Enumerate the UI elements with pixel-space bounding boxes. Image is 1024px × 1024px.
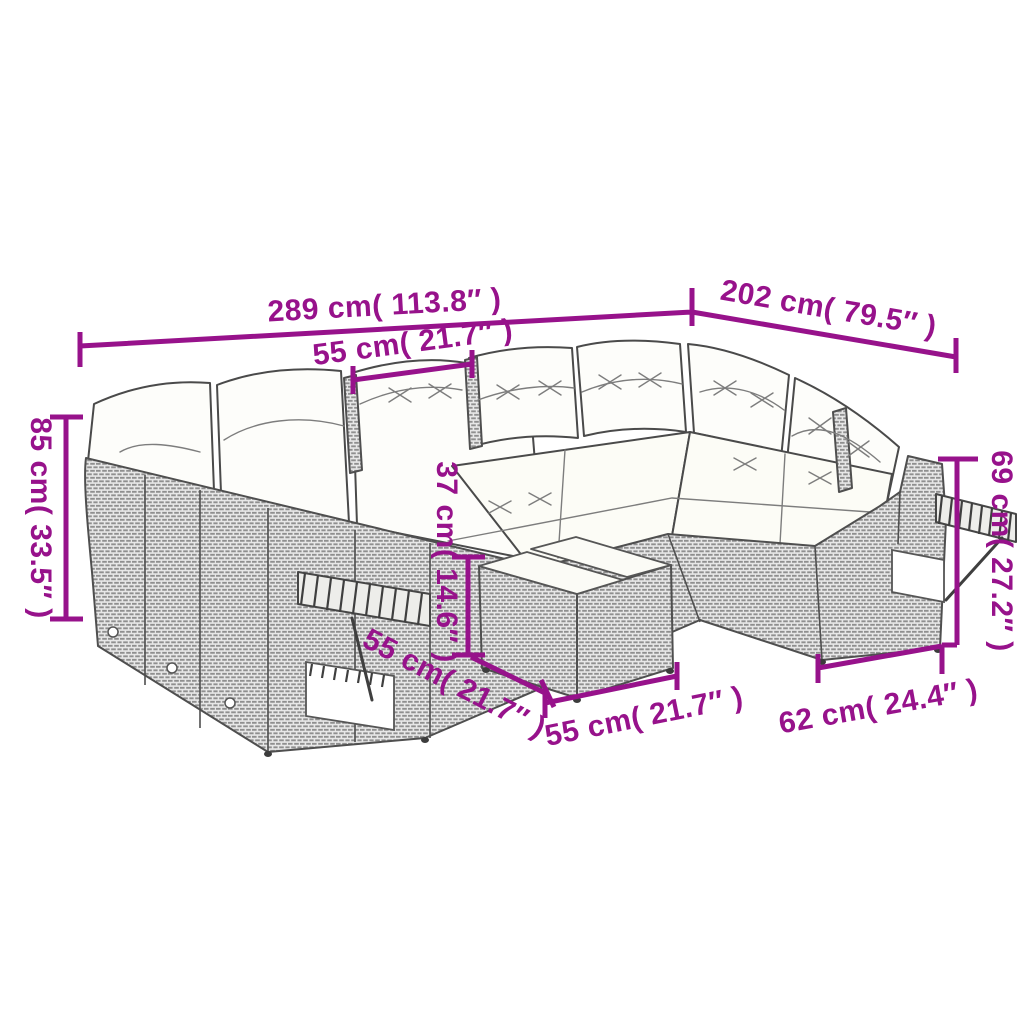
dim-back-height-label: 85 cm( 33.5″ ) bbox=[24, 417, 57, 618]
product-dimension-diagram: 289 cm( 113.8″ ) 202 cm( 79.5″ ) 55 cm( … bbox=[0, 0, 1024, 1024]
dimension-diagram-page: 289 cm( 113.8″ ) 202 cm( 79.5″ ) 55 cm( … bbox=[0, 0, 1024, 1024]
dim-seat-height-label: 37 cm( 14.6″ ) bbox=[430, 461, 463, 662]
dim-arm-height-label: 69 cm( 27.2″ ) bbox=[985, 450, 1018, 651]
